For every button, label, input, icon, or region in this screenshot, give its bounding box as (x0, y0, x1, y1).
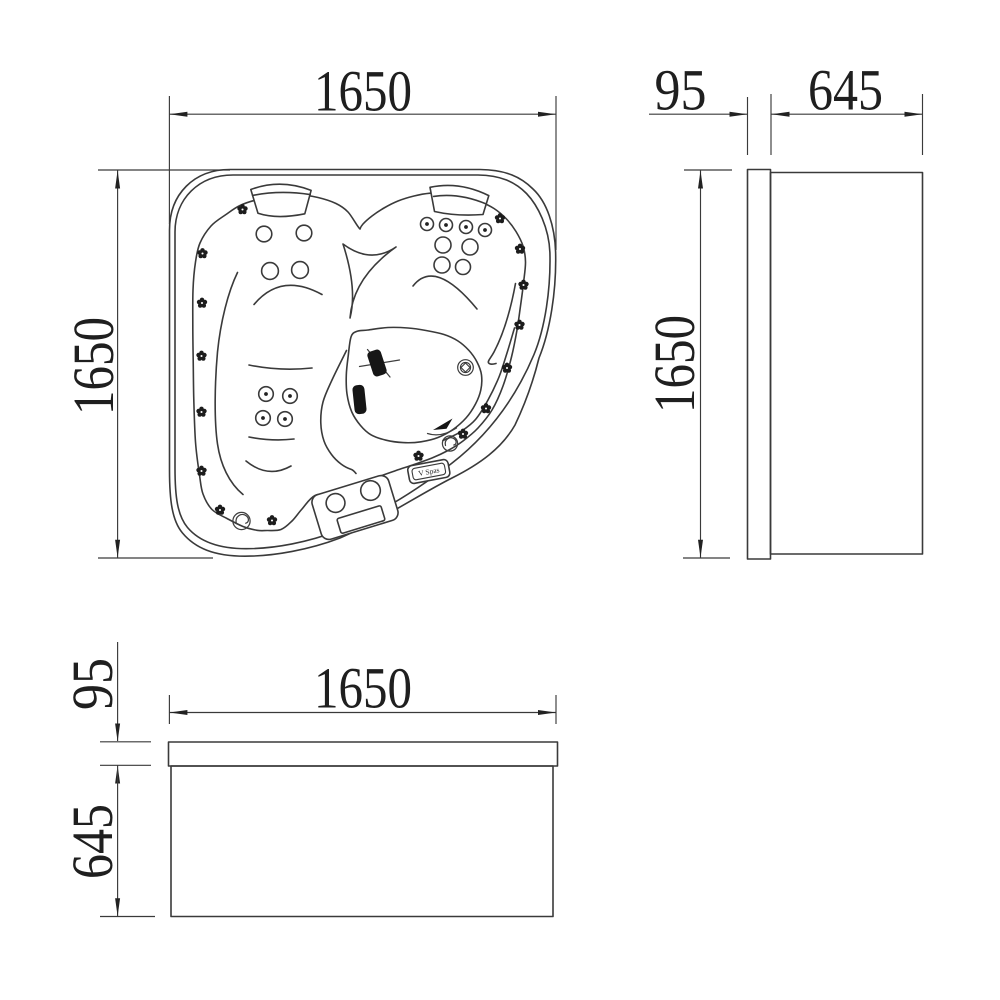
svg-text:1650: 1650 (642, 315, 707, 413)
svg-text:645: 645 (808, 58, 883, 123)
svg-text:1650: 1650 (61, 317, 126, 415)
svg-text:645: 645 (60, 804, 125, 879)
svg-text:1650: 1650 (314, 59, 412, 124)
svg-text:95: 95 (60, 658, 125, 710)
svg-text:95: 95 (655, 58, 707, 123)
svg-text:1650: 1650 (314, 656, 412, 721)
